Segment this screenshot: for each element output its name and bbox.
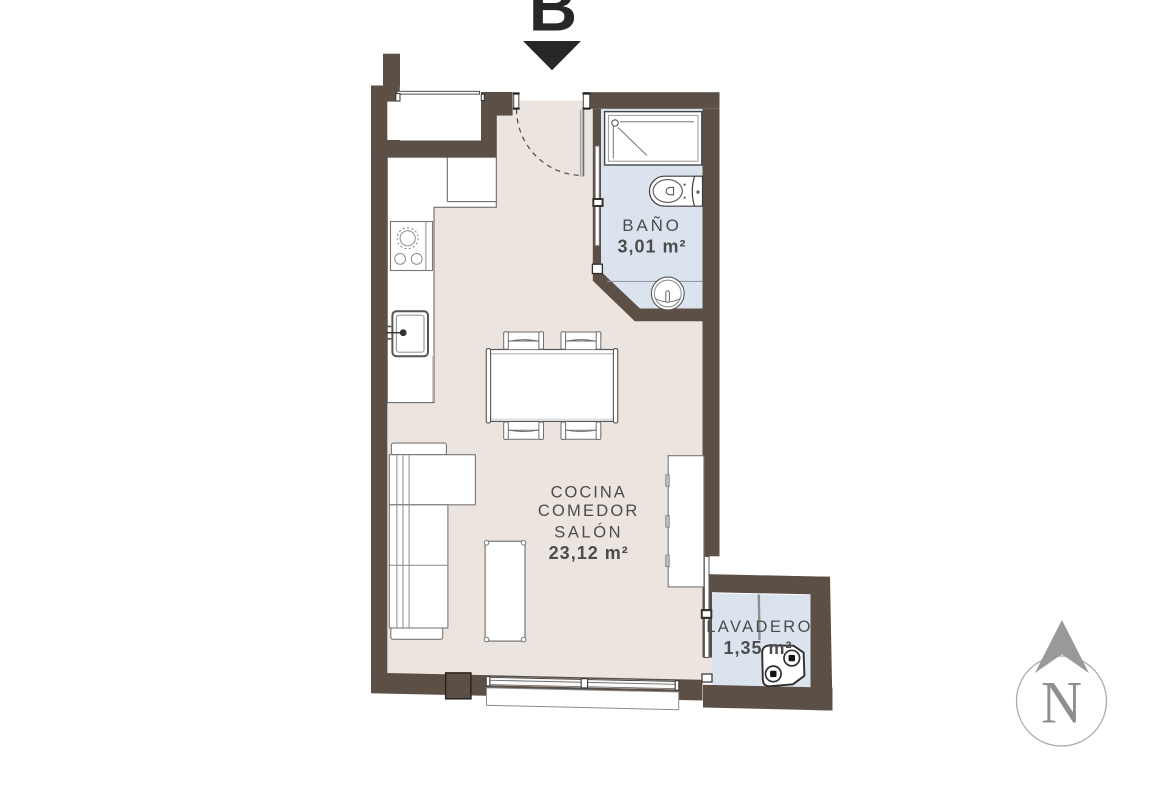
- svg-text:N: N: [1041, 670, 1082, 736]
- svg-text:23,12 m²: 23,12 m²: [549, 543, 629, 563]
- svg-text:BAÑO: BAÑO: [622, 216, 681, 235]
- svg-text:COCINA: COCINA: [551, 483, 627, 501]
- svg-text:COMEDOR: COMEDOR: [538, 502, 640, 520]
- svg-text:SALÓN: SALÓN: [554, 522, 623, 541]
- svg-text:1,35 m²: 1,35 m²: [723, 638, 792, 658]
- svg-text:LAVADERO: LAVADERO: [706, 618, 813, 636]
- svg-text:3,01 m²: 3,01 m²: [617, 236, 686, 256]
- svg-text:B: B: [529, 0, 577, 46]
